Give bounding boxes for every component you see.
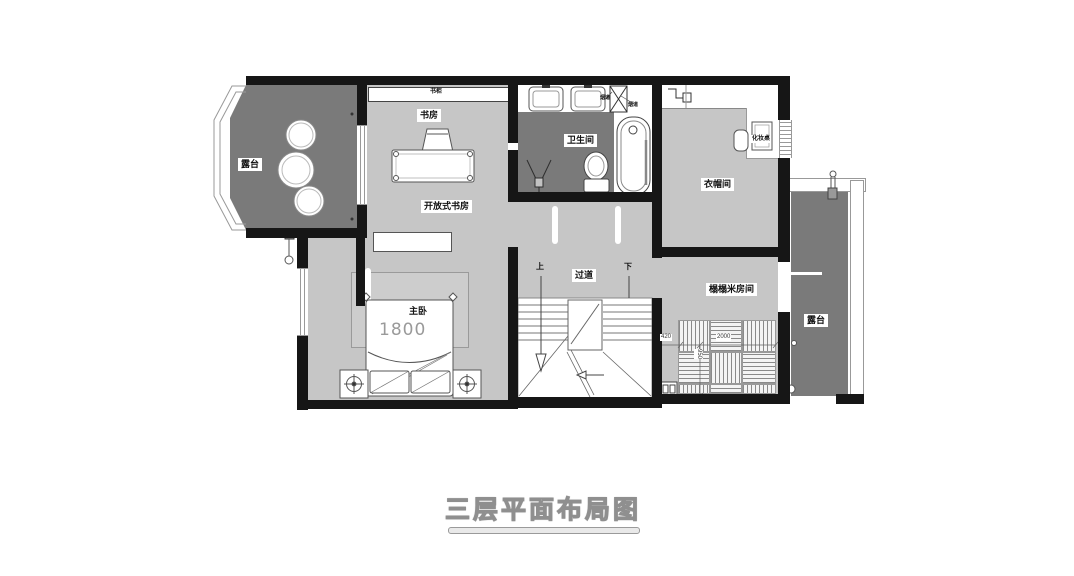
wall-segment: [508, 247, 518, 408]
stair-up-marker: 上: [536, 262, 544, 271]
wall-segment: [297, 400, 518, 409]
tatami-cell: [742, 320, 776, 352]
makeup-nook: [746, 108, 779, 159]
wall-segment: [508, 397, 662, 408]
door-frame-strip: [552, 206, 558, 244]
room-label-master-bedroom: 主卧: [409, 306, 427, 316]
tatami-cell: [742, 352, 776, 384]
tatami-cell: [710, 384, 742, 394]
room-label-tatami: 榻榻米房间: [706, 283, 757, 296]
floor-plan-canvas: 露台 书柜 书房 开放式书房 卫生间 烟道 烟道 衣帽间 化妆桌 主卧 1800…: [0, 0, 1074, 576]
wall-segment: [246, 76, 788, 85]
room-label-terrace-left: 露台: [238, 158, 262, 171]
wall-segment: [356, 238, 365, 306]
wall-segment: [836, 394, 864, 404]
terrace-right-threshold: [790, 272, 822, 275]
room-label-terrace-right: 露台: [804, 314, 828, 327]
wall-segment: [246, 228, 367, 238]
tatami-cell: [678, 384, 710, 394]
tatami-mat-pattern: [678, 320, 776, 394]
label-duct-b: 烟道: [628, 102, 638, 108]
title-underline-bar: [448, 527, 640, 534]
dimension-2000: 2000: [716, 334, 731, 341]
wall-segment: [652, 394, 790, 404]
wall-segment: [297, 334, 308, 410]
bed-width-value: 1800: [379, 321, 426, 339]
tatami-cell: [678, 320, 710, 352]
tatami-cell: [742, 384, 776, 394]
label-makeup-table: 化妆桌: [751, 135, 771, 143]
label-duct-a: 烟道: [600, 95, 610, 101]
floor-opening-corridor-tatami: [652, 258, 662, 298]
floor-corridor: [518, 202, 652, 300]
floor-bathroom: [518, 112, 618, 194]
wall-segment: [778, 158, 790, 262]
wall-segment: [357, 203, 367, 238]
bathtub-zone: [614, 112, 652, 194]
wall-segment: [297, 238, 308, 268]
room-label-open-study: 开放式书房: [421, 200, 472, 213]
door-frame-strip: [365, 268, 371, 306]
bedroom-window: [297, 268, 308, 336]
stair-down-marker: 下: [624, 262, 632, 271]
bedroom-cabinet: [373, 232, 452, 252]
room-label-cloakroom: 衣帽间: [701, 178, 734, 191]
floor-terrace-right: [791, 190, 848, 396]
terrace-study-door: [357, 125, 367, 205]
tatami-terrace-door: [778, 262, 790, 312]
room-label-bathroom: 卫生间: [564, 134, 597, 147]
tatami-cell: [710, 352, 742, 384]
bathroom-wall-niche: [508, 143, 518, 150]
cloakroom-closet-strip: [662, 85, 778, 109]
wall-segment: [508, 150, 518, 197]
cloakroom-window: [779, 120, 792, 158]
wall-segment: [508, 85, 518, 143]
drawing-title: 三层平面布局图: [418, 490, 668, 526]
terrace-right-railing-side: [850, 180, 864, 404]
room-label-study: 书房: [417, 109, 441, 122]
wall-segment: [652, 76, 662, 258]
floor-opening-study-corridor: [508, 197, 518, 247]
door-frame-strip: [615, 206, 621, 244]
wall-segment: [778, 312, 790, 396]
wall-segment: [652, 298, 662, 408]
wall-segment: [357, 85, 367, 125]
wall-segment: [508, 192, 662, 202]
dimension-420: 420: [660, 334, 672, 341]
label-bookcase: 书柜: [429, 88, 443, 96]
wall-segment: [778, 76, 790, 120]
dimension-950: 950: [694, 349, 703, 359]
wall-segment: [662, 247, 780, 257]
room-label-corridor: 过道: [572, 269, 596, 282]
staircase: [518, 298, 652, 398]
